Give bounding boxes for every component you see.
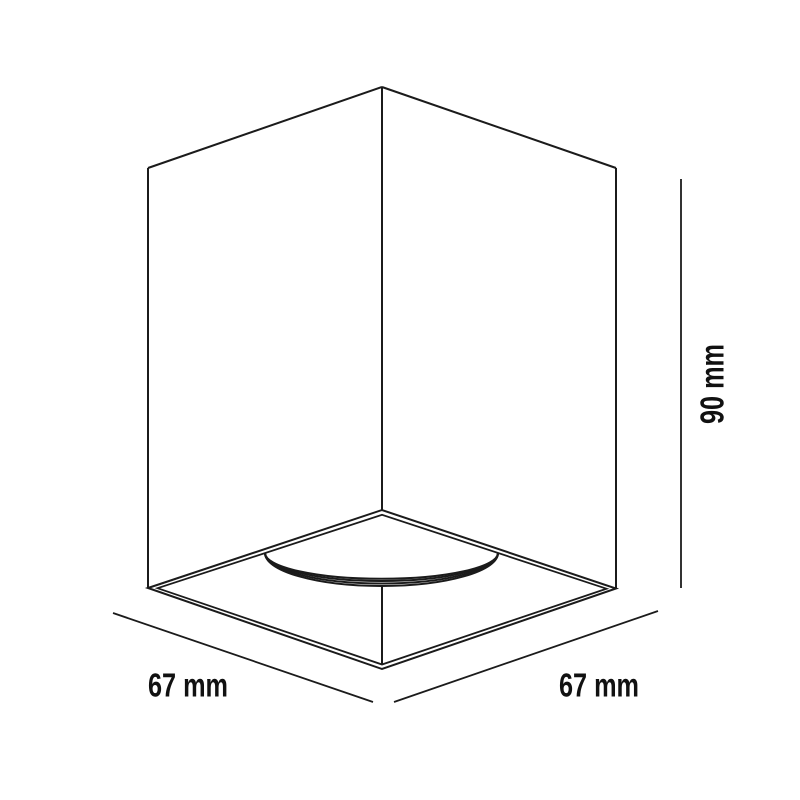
top-left-edge — [148, 87, 382, 168]
bottom-face — [148, 510, 616, 669]
width-side-dimension-label: 67 mm — [559, 667, 639, 704]
drawing-page: 67 mm 67 mm 90 mm — [0, 0, 800, 800]
width-front-dimension-label: 67 mm — [148, 667, 228, 704]
dimension-lines — [113, 179, 681, 702]
top-right-edge — [382, 87, 616, 168]
height-dimension-label: 90 mm — [694, 344, 731, 424]
fixture-outline — [148, 87, 616, 589]
lens-opening — [265, 553, 498, 586]
technical-drawing-canvas: 67 mm 67 mm 90 mm — [0, 0, 800, 800]
